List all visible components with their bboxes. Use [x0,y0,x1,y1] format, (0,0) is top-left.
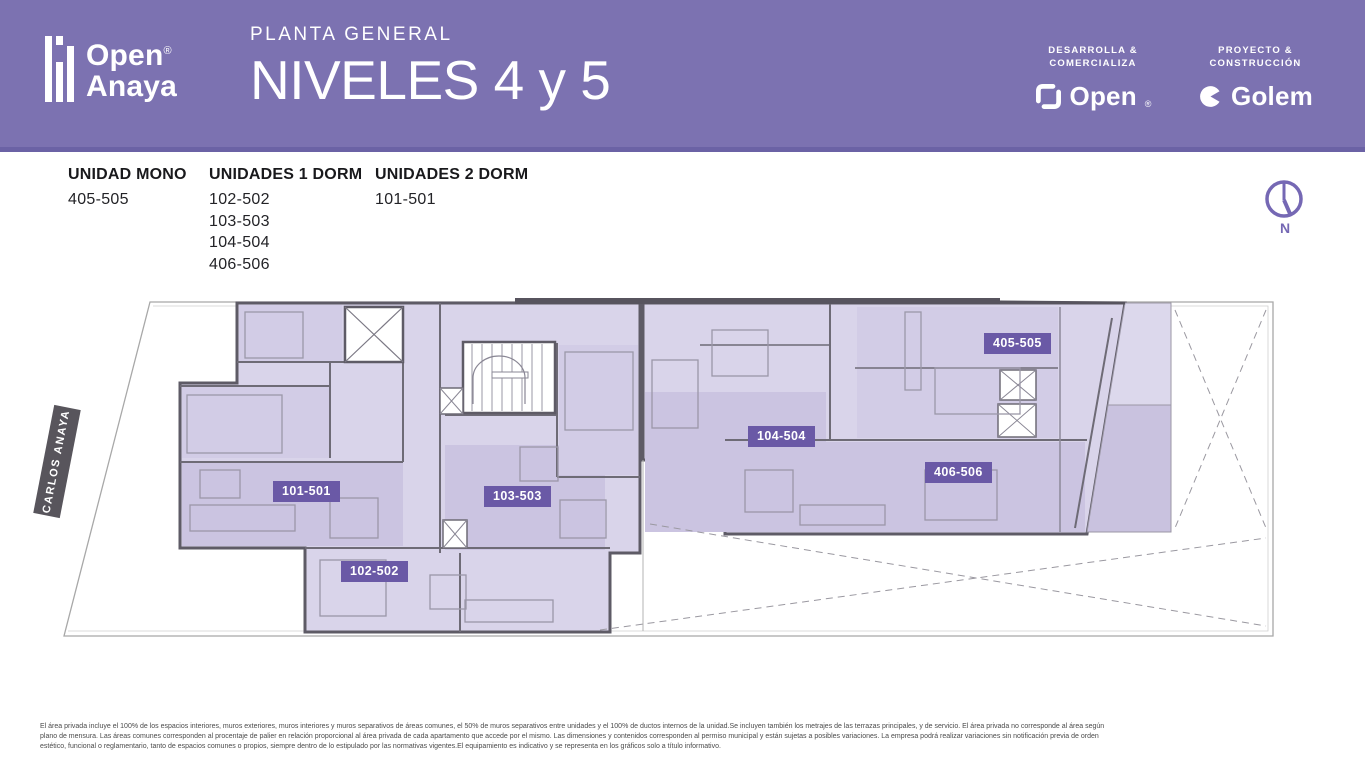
open-logo-text: Open [1070,81,1137,112]
disclaimer-line: estético, funcional o reglamentario, tan… [40,742,1340,752]
north-arrow-icon [1267,182,1301,216]
unit-tag-104-504: 104-504 [748,426,815,447]
brand-bars-icon [45,36,75,102]
disclaimer-line: plano de mensura. Las áreas comunes corr… [40,732,1340,742]
legend-unit: 101-501 [375,189,528,211]
golem-logo-text: Golem [1231,81,1313,112]
golem-logo: Golem [1178,81,1333,112]
legend-column-1dorm: UNIDADES 1 DORM 102-502 103-503 104-504 … [209,166,362,275]
builder-block: PROYECTO & CONSTRUCCIÓN Golem [1178,44,1333,112]
page-subtitle: PLANTA GENERAL [250,24,610,46]
builder-label: PROYECTO & CONSTRUCCIÓN [1178,44,1333,70]
brand-logo: Open® Anaya [45,36,177,102]
title-block: PLANTA GENERAL NIVELES 4 y 5 [250,24,610,112]
legend-unit: 405-505 [68,189,187,211]
unit-tag-406-506: 406-506 [925,462,992,483]
unit-tag-102-502: 102-502 [341,561,408,582]
disclaimer-line: El área privada incluye el 100% de los e… [40,722,1340,732]
north-label: N [1270,220,1300,236]
header-bar: Open® Anaya PLANTA GENERAL NIVELES 4 y 5… [0,0,1365,152]
stair-core [463,342,555,413]
legend-title: UNIDADES 1 DORM [209,166,362,184]
plan-sheet-page: Open® Anaya PLANTA GENERAL NIVELES 4 y 5… [0,0,1365,768]
developer-label: DESARROLLA & COMERCIALIZA [1008,44,1178,70]
legend-unit: 104-504 [209,232,362,254]
registered-mark: ® [1145,99,1152,109]
legal-disclaimer: El área privada incluye el 100% de los e… [40,722,1340,751]
legend-unit: 406-506 [209,254,362,276]
legend-title: UNIDAD MONO [68,166,187,184]
developer-block: DESARROLLA & COMERCIALIZA Open ® [1008,44,1178,112]
legend-unit: 103-503 [209,211,362,233]
unit-tag-101-501: 101-501 [273,481,340,502]
open-square-icon [1035,83,1062,110]
brand-name: Open® Anaya [86,36,177,102]
page-title: NIVELES 4 y 5 [250,48,610,112]
open-logo: Open ® [1008,81,1178,112]
unit-tag-405-505: 405-505 [984,333,1051,354]
elevator-shaft [345,307,403,362]
registered-mark: ® [163,45,171,57]
legend-unit: 102-502 [209,189,362,211]
golem-g-icon [1198,84,1223,109]
legend-title: UNIDADES 2 DORM [375,166,528,184]
unit-tag-103-503: 103-503 [484,486,551,507]
legend-column-mono: UNIDAD MONO 405-505 [68,166,187,211]
legend-column-2dorm: UNIDADES 2 DORM 101-501 [375,166,528,211]
